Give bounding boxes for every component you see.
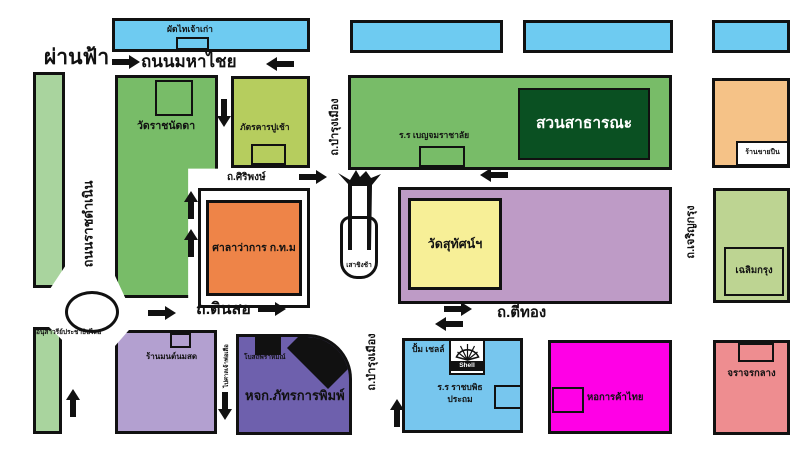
shell-school-block: ปั้ม เชลล์ Shell ร.ร ราชบพิธ ประถม <box>402 338 523 433</box>
chalermkrung-label: เฉลิมกรุง <box>735 266 772 277</box>
pu-chao-restaurant-block: ภัตรคารปูเช้า <box>231 76 310 168</box>
mont-nom-sot-block: ร้านมนต์นมสด <box>115 330 217 434</box>
wat-ratchanatda-label: วัดราชนัดดา <box>137 120 195 132</box>
dinso-road-label: ถ.ดินสอ <box>196 301 251 319</box>
printing-diamond-marker <box>287 334 352 389</box>
arrow-right-icon <box>444 302 472 316</box>
mont-nom-sot-marker <box>170 333 191 348</box>
shell-station-label: ปั้ม เชลล์ <box>412 345 444 355</box>
thai-chamber-marker <box>552 387 584 413</box>
public-park-block: ร.ร เบญจมราชาลัย สวนสาธารณะ <box>348 75 672 170</box>
arrow-right-icon <box>299 170 327 184</box>
gun-shop-block: ร้านขายปืน <box>712 78 790 168</box>
arrow-right-icon <box>258 302 286 316</box>
pattara-printing-block: โบสถ์พราหมณ์ หจก.ภัทรการพิมพ์ <box>236 334 352 435</box>
siriphong-road-label: ถ.ศิริพงษ์ <box>227 172 266 184</box>
giant-swing-label: เสาชิงช้า <box>343 262 375 269</box>
benjamarachalai-school-label: ร.ร เบญจมราชาลัย <box>399 131 469 141</box>
to-tiger-shrine-label: ไปศาลเจ้าพ่อเสือ <box>221 344 231 388</box>
phat-thai-stall-label: ผัดไทเจ้าเก่า <box>167 25 213 35</box>
arrow-right-icon <box>148 306 176 320</box>
gun-shop-marker: ร้านขายปืน <box>736 141 789 166</box>
central-traffic-block: จราจรกลาง <box>713 340 790 435</box>
thai-chamber-block: หอการค้าไทย <box>548 340 672 434</box>
chalermkrung-block: เฉลิมกรุง <box>713 188 790 303</box>
wat-suthat-block: วัดสุทัศน์ฯ <box>398 187 672 304</box>
chalermkrung-marker: เฉลิมกรุง <box>724 247 784 296</box>
pu-chao-restaurant-marker <box>251 144 286 165</box>
bangkok-area-map: ผัดไทเจ้าเก่า ผ่านฟ้า ถนนมหาไชย ถนนราชดำ… <box>0 0 800 455</box>
bamrung-mueang-road-label-lower: ถ.บำรุงเมือง <box>362 333 380 390</box>
shell-logo-box: Shell <box>449 339 485 375</box>
rajabopit-school-marker <box>494 385 522 409</box>
city-hall-label: ศาลาว่าการ ก.ท.ม <box>212 242 296 254</box>
phan-fa-label: ผ่านฟ้า <box>44 46 109 70</box>
arrow-left-icon <box>435 317 463 331</box>
ratchadamnoen-road-label: ถนนราชดำเนิน <box>78 181 99 268</box>
city-hall-block: ศาลาว่าการ ก.ท.ม <box>206 200 302 296</box>
roadside-strip-upper <box>33 72 65 288</box>
arrow-up-icon <box>184 229 198 257</box>
central-traffic-label: จราจรกลาง <box>716 369 787 380</box>
central-traffic-marker <box>738 343 774 362</box>
democracy-monument-label: อนุสาวรีย์ประชาธิปไตย <box>36 329 101 336</box>
roadside-strip-lower <box>33 327 62 434</box>
rajabopit-school-label-line1: ร.ร ราชบพิธ <box>425 383 495 393</box>
ti-thong-road-label: ถ.ตีทอง <box>497 304 546 321</box>
giant-swing-icon <box>334 168 384 250</box>
charoen-krung-road-label: ถ.เจริญกรุง <box>681 205 699 258</box>
shophouse-row-2 <box>350 20 503 53</box>
wat-suthat-inner: วัดสุทัศน์ฯ <box>408 198 502 290</box>
city-hall-compound: ศาลาว่าการ ก.ท.ม <box>198 188 310 308</box>
public-park-inner: สวนสาธารณะ <box>518 88 650 160</box>
brahmin-temple-label: โบสถ์พราหมณ์ <box>244 354 286 361</box>
arrow-left-icon <box>266 57 294 71</box>
arrow-down-icon <box>217 99 231 127</box>
benjamarachalai-school-marker <box>419 146 465 167</box>
gun-shop-label: ร้านขายปืน <box>745 149 780 157</box>
arrow-left-icon <box>480 168 508 182</box>
shell-brand-label: Shell <box>451 361 483 371</box>
pu-chao-restaurant-label: ภัตรคารปูเช้า <box>240 123 290 133</box>
arrow-down-icon <box>218 392 232 420</box>
pattara-printing-label: หจก.ภัทรการพิมพ์ <box>245 389 345 404</box>
democracy-monument-circle <box>65 291 119 333</box>
shell-icon <box>452 341 483 361</box>
maha-chai-road-label: ถนนมหาไชย <box>141 52 237 72</box>
rajabopit-school-label-line2: ประถม <box>425 395 495 405</box>
shophouse-row-3 <box>523 20 673 53</box>
wat-ratchanatda-marker <box>155 80 193 116</box>
wat-suthat-label: วัดสุทัศน์ฯ <box>428 237 483 251</box>
shophouse-row-4 <box>712 20 790 53</box>
arrow-up-icon <box>66 389 80 417</box>
bamrung-mueang-road-label-upper: ถ.บำรุงเมือง <box>325 98 343 155</box>
public-park-label: สวนสาธารณะ <box>536 115 632 133</box>
phat-thai-stall-marker <box>176 37 209 50</box>
shophouse-row-1: ผัดไทเจ้าเก่า <box>112 18 310 52</box>
mont-nom-sot-label: ร้านมนต์นมสด <box>146 352 197 361</box>
thai-chamber-label: หอการค้าไทย <box>587 393 643 404</box>
arrow-up-icon <box>184 191 198 219</box>
arrow-right-icon <box>112 55 140 69</box>
printing-notch-marker <box>255 337 281 355</box>
